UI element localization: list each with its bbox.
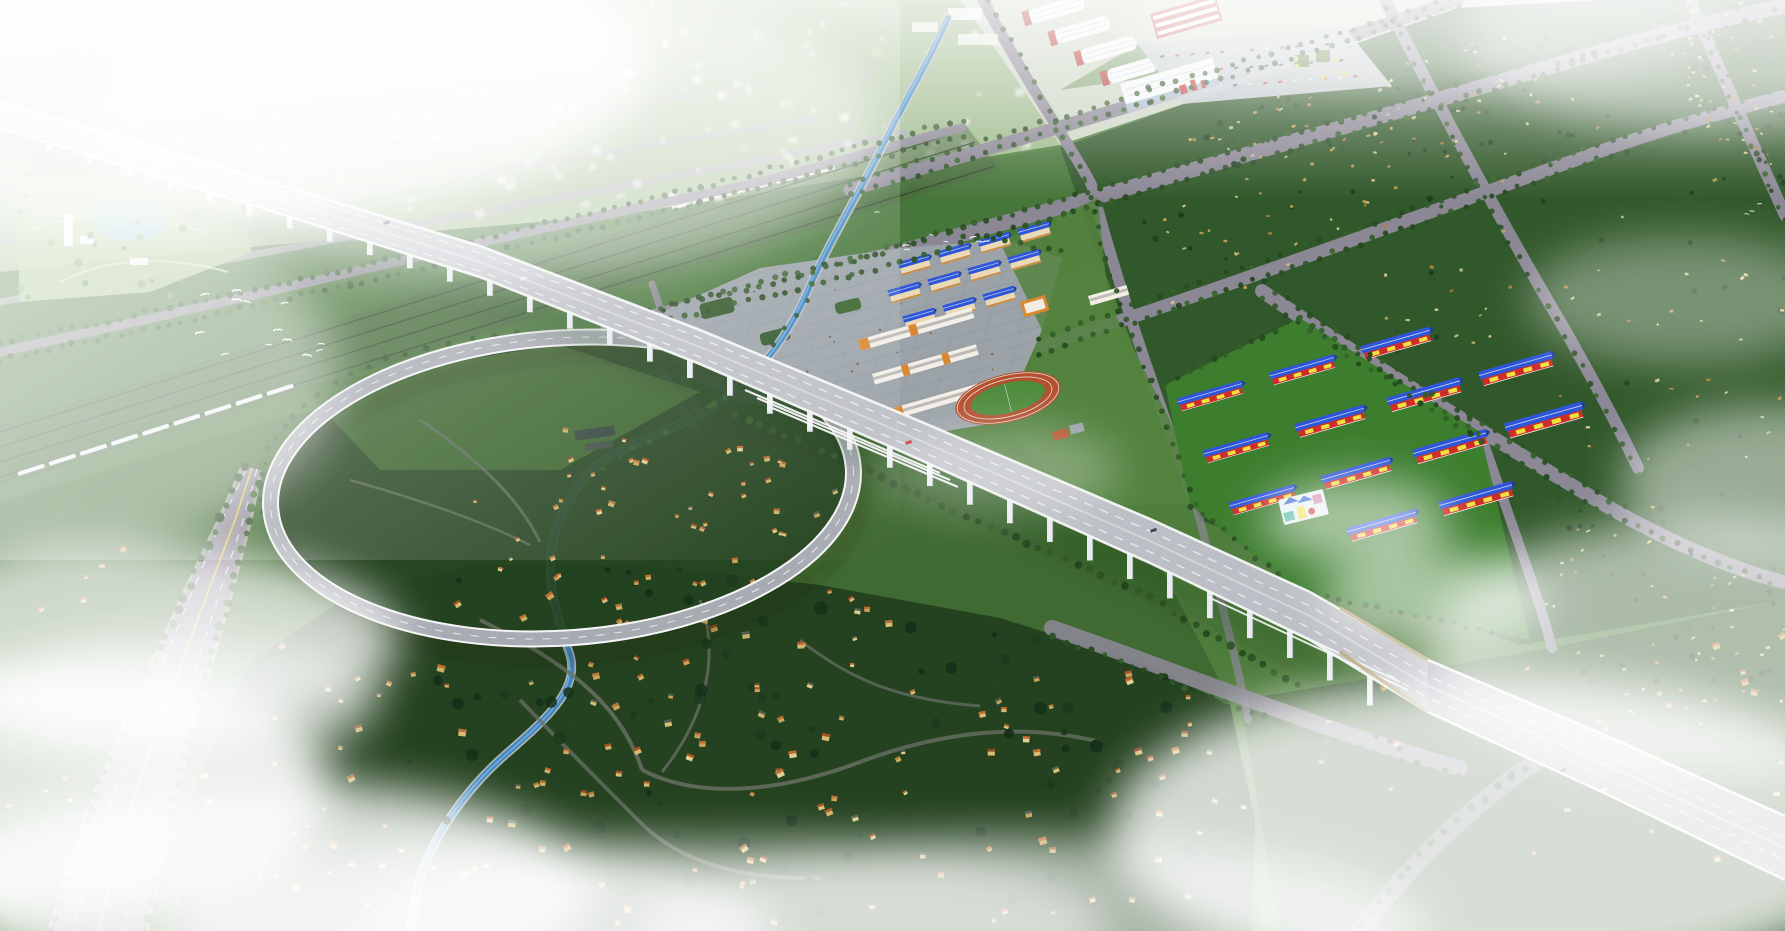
tree-icon [1115,309,1121,315]
tree-icon [1021,207,1027,213]
tree-icon [1433,402,1438,407]
tree-icon [963,513,970,520]
tree-icon [1329,248,1335,254]
tree-icon [1187,369,1192,374]
tree-icon [1265,272,1270,277]
tree-icon [500,689,509,698]
tree-icon [1429,270,1434,275]
tree-icon [1170,679,1176,685]
tree-icon [1259,296,1265,302]
tree-icon [1531,469,1537,475]
tree-icon [1319,328,1325,334]
tree-icon [1282,675,1290,683]
tree-icon [456,578,462,584]
village-house [831,795,838,801]
tree-icon [547,735,553,741]
tree-icon [1417,400,1423,406]
tree-icon [1096,788,1101,793]
tree-icon [1588,381,1594,387]
tree-icon [1581,363,1586,368]
tree-icon [1598,237,1604,243]
tree-icon [1211,275,1217,281]
tree-icon [1466,423,1471,428]
tree-icon [1121,582,1129,590]
tree-icon [1543,474,1549,480]
tree-icon [971,219,977,225]
tree-icon [814,601,828,615]
tree-icon [758,694,767,703]
tree-icon [1001,529,1008,536]
tree-icon [1272,303,1278,309]
pedestrian [930,332,932,334]
tree-icon [1542,460,1547,465]
tree-icon [1356,362,1361,367]
tree-icon [1265,257,1271,263]
tree-icon [771,740,781,750]
tree-icon [777,663,790,676]
tree-icon [1383,230,1388,235]
tree-icon [1062,745,1070,753]
tree-icon [1572,350,1578,356]
tree-icon [1035,545,1041,551]
tree-icon [1619,441,1625,447]
tree-icon [1248,654,1256,662]
tree-icon [1430,277,1436,283]
tree-icon [1454,407,1460,413]
tree-icon [1096,572,1104,580]
tree-icon [1270,669,1277,676]
tree-icon [1320,321,1326,327]
tree-icon [1187,504,1193,510]
tree-icon [1248,338,1254,344]
tree-icon [1296,316,1302,322]
tree-icon [1222,699,1227,704]
tree-icon [1530,453,1536,459]
tree-icon [1160,701,1172,713]
tree-icon [1409,205,1415,211]
tree-icon [1569,489,1575,495]
tree-icon [958,240,964,246]
tree-icon [950,686,963,699]
tree-icon [1556,497,1562,503]
tree-icon [1103,329,1109,335]
pedestrian [901,303,903,305]
tree-icon [1203,630,1210,637]
tree-icon [1434,335,1439,340]
tree-icon [1181,685,1187,691]
tree-icon [1114,288,1119,293]
tree-icon [1422,392,1428,398]
tree-icon [553,731,566,744]
tree-icon [1106,777,1113,784]
tree-icon [592,821,606,835]
tree-icon [1195,690,1202,697]
tree-icon [921,238,927,244]
tree-icon [1237,344,1242,349]
tree-icon [1023,540,1031,548]
tree-icon [1069,809,1079,819]
tree-icon [725,574,738,587]
tree-icon [1776,205,1780,209]
tree-icon [1058,248,1063,253]
tree-icon [1316,237,1322,243]
tree-icon [1157,294,1163,300]
tree-icon [1070,208,1076,214]
tree-icon [1078,320,1084,326]
tree-icon [1158,673,1165,680]
pedestrian [991,353,993,355]
tree-icon [992,632,997,637]
tree-icon [1142,220,1146,224]
tree-icon [1004,729,1014,739]
tree-icon [1578,523,1583,528]
tree-icon [1208,694,1214,700]
tree-icon [1344,334,1350,340]
tree-icon [1223,287,1228,292]
tree-icon [1384,375,1389,380]
tree-icon [1083,205,1089,211]
tree-icon [1273,329,1279,335]
tree-icon [1180,615,1188,623]
tree-icon [1036,352,1042,358]
villa-house [1268,232,1272,234]
tree-icon [1279,270,1284,275]
tree-icon [911,240,917,246]
tree-icon [1578,509,1582,513]
tree-icon [810,749,819,758]
tree-icon [1429,391,1435,397]
tree-icon [657,801,663,807]
tree-icon [946,245,952,251]
tree-icon [1277,252,1282,257]
tree-icon [1175,375,1180,380]
tree-icon [1160,600,1167,607]
tree-icon [433,675,443,685]
village-house [754,687,760,692]
villa-house [1266,215,1270,217]
tree-icon [722,649,732,659]
tree-icon [1622,518,1628,524]
village-house [1022,736,1030,743]
tree-icon [1341,344,1347,350]
tree-icon [1244,545,1249,550]
tree-icon [1132,321,1137,326]
tree-icon [1010,213,1015,218]
rendering-canvas [0,0,1785,931]
tree-icon [1259,335,1265,341]
tree-icon [1184,301,1189,306]
tree-icon [1170,442,1175,447]
tree-icon [501,716,511,726]
tree-icon [1295,682,1301,688]
tree-icon [1595,489,1601,495]
villa-house [1706,379,1710,381]
tree-icon [1103,257,1108,262]
tree-icon [1283,312,1289,318]
tree-icon [1623,504,1628,509]
tree-icon [407,759,412,764]
tree-icon [1098,241,1103,246]
village-house [580,790,588,797]
tree-icon [1146,299,1151,304]
tree-icon [1594,393,1599,398]
tree-icon [523,690,531,698]
tree-icon [1224,257,1228,261]
tree-icon [1096,224,1101,229]
tree-icon [1227,641,1235,649]
tree-icon [1395,367,1400,372]
tree-icon [1604,409,1609,414]
tree-icon [656,721,663,728]
villa-house [1208,229,1211,232]
tree-icon [1322,334,1327,339]
tree-icon [1437,213,1443,219]
tree-icon [431,665,436,670]
tree-icon [1090,332,1095,337]
tree-icon [1154,395,1159,400]
tree-icon [1443,415,1449,421]
tree-icon [1386,215,1392,221]
tree-icon [997,215,1003,221]
village-house [615,771,622,777]
tree-icon [604,567,610,573]
villa-house [1588,445,1591,447]
tree-icon [626,570,632,576]
tree-icon [645,790,651,796]
tree-icon [768,710,776,718]
tree-icon [1392,381,1397,386]
tree-icon [934,249,940,255]
village-house [1033,749,1042,757]
tree-icon [1670,226,1673,229]
tree-icon [1078,336,1084,342]
tree-icon [1198,297,1204,303]
tree-icon [1064,640,1070,646]
tree-icon [1407,393,1412,398]
tree-icon [545,696,557,708]
tree-icon [1344,230,1349,235]
tree-icon [1582,499,1587,504]
tree-icon [1035,220,1041,226]
tree-icon [1442,409,1447,414]
pedestrian [992,368,994,370]
tree-icon [1129,302,1135,308]
tree-icon [1358,242,1364,248]
tree-icon [1046,780,1055,789]
tree-icon [1252,556,1258,562]
tree-icon [1480,421,1485,426]
tree-icon [1152,236,1158,242]
tree-icon [676,567,682,573]
tree-icon [1170,288,1176,294]
tree-icon [1398,226,1403,231]
tree-icon [1607,513,1612,518]
tree-icon [1467,415,1473,421]
tree-icon [1187,487,1193,493]
tree-icon [1439,204,1443,208]
village-house [987,749,995,756]
tree-icon [1223,353,1228,358]
tree-icon [1128,664,1134,670]
tree-icon [1018,240,1024,246]
tree-icon [1572,508,1578,514]
tree-icon [473,693,481,701]
village-house [1186,695,1191,700]
tree-icon [1261,278,1267,284]
tree-icon [629,711,637,719]
tree-icon [1507,439,1513,445]
tree-icon [1119,322,1124,327]
tree-icon [563,687,573,697]
tree-icon [1424,202,1430,208]
tree-icon [536,699,543,706]
tree-icon [1106,273,1112,279]
tree-icon [1031,245,1037,251]
tree-icon [1036,337,1041,342]
tree-icon [1591,524,1595,528]
tree-icon [1295,305,1301,311]
tree-icon [1334,328,1339,333]
tree-icon [991,236,996,241]
tree-icon [780,815,786,821]
tree-icon [1200,511,1205,516]
tree-icon [1506,240,1511,245]
tree-icon [1171,306,1176,311]
tree-icon [1355,351,1360,356]
tree-icon [983,218,989,224]
tree-icon [1061,211,1067,217]
village-house [458,729,467,737]
tree-icon [1089,315,1095,321]
village-house [633,580,639,585]
tree-icon [1184,284,1189,289]
tree-icon [975,518,981,524]
tree-icon [1196,279,1202,285]
tree-icon [988,523,995,530]
tree-icon [1224,269,1229,274]
tree-icon [1332,336,1338,342]
tree-icon [1171,611,1177,617]
tree-icon [1194,502,1199,507]
tree-icon [1136,346,1142,352]
tree-icon [1380,358,1386,364]
tree-icon [1159,408,1165,414]
tree-icon [565,717,574,726]
tree-icon [1046,246,1052,252]
tree-icon [1478,438,1484,444]
tree-icon [1212,290,1218,296]
tree-icon [1022,223,1028,229]
tree-icon [1035,204,1041,210]
villa-house [1330,218,1332,220]
tree-icon [661,823,670,832]
village-house [563,749,569,755]
tree-icon [1555,484,1560,489]
tree-icon [1062,702,1074,714]
tree-icon [1317,256,1323,262]
tree-icon [1494,444,1500,450]
tree-icon [1309,323,1315,329]
tree-icon [1520,443,1525,448]
tree-icon [1032,636,1041,645]
tree-icon [1210,518,1215,523]
tree-icon [1624,380,1629,385]
village-house [644,781,650,786]
villa-house [1406,319,1410,321]
tree-icon [1344,353,1349,358]
tree-icon [1215,635,1222,642]
tree-icon [1221,526,1226,531]
tree-icon [1292,248,1297,253]
tree-icon [1393,329,1399,335]
tree-icon [1111,580,1117,586]
tree-icon [1566,525,1572,531]
tree-icon [1086,565,1094,573]
tree-icon [857,833,863,839]
tree-icon [1419,381,1425,387]
tree-icon [1388,374,1394,380]
tree-icon [755,729,766,740]
tree-icon [1525,272,1530,277]
tree-icon [1049,348,1055,354]
tree-icon [641,801,649,809]
tree-icon [918,668,924,674]
tree-icon [1134,587,1142,595]
tree-icon [1050,332,1056,338]
tree-icon [1239,650,1246,657]
tree-icon [1411,386,1416,391]
tree-icon [1090,739,1103,752]
village-house [864,607,870,613]
tree-icon [1062,343,1068,349]
tree-icon [960,234,966,240]
tree-icon [1397,379,1403,385]
tree-icon [1157,309,1162,314]
tree-icon [1188,246,1192,250]
tree-icon [960,224,966,230]
tree-icon [1141,365,1145,369]
villa-house [1337,227,1340,230]
tree-icon [452,698,464,710]
tree-icon [1176,303,1182,309]
tree-icon [786,815,798,827]
tree-icon [1612,427,1618,433]
tree-icon [1272,290,1278,296]
tree-icon [1399,210,1404,215]
tree-icon [1075,561,1082,568]
tree-icon [1303,261,1309,267]
tree-icon [1448,209,1453,214]
tree-icon [766,624,774,632]
tree-icon [1002,238,1008,244]
tree-icon [1049,633,1056,640]
tree-icon [1356,227,1361,232]
village-house [699,741,706,747]
tree-icon [1453,423,1459,429]
tree-icon [1012,533,1020,541]
tree-icon [1176,454,1182,460]
tree-icon [1118,302,1123,307]
tree-icon [1047,549,1054,556]
tree-icon [1284,319,1289,324]
tree-icon [1578,503,1583,508]
tree-icon [1491,404,1495,408]
tree-icon [1197,364,1203,370]
tree-icon [1011,225,1016,230]
tree-icon [1303,242,1308,247]
tree-icon [1424,220,1430,226]
tree-icon [1238,282,1243,287]
